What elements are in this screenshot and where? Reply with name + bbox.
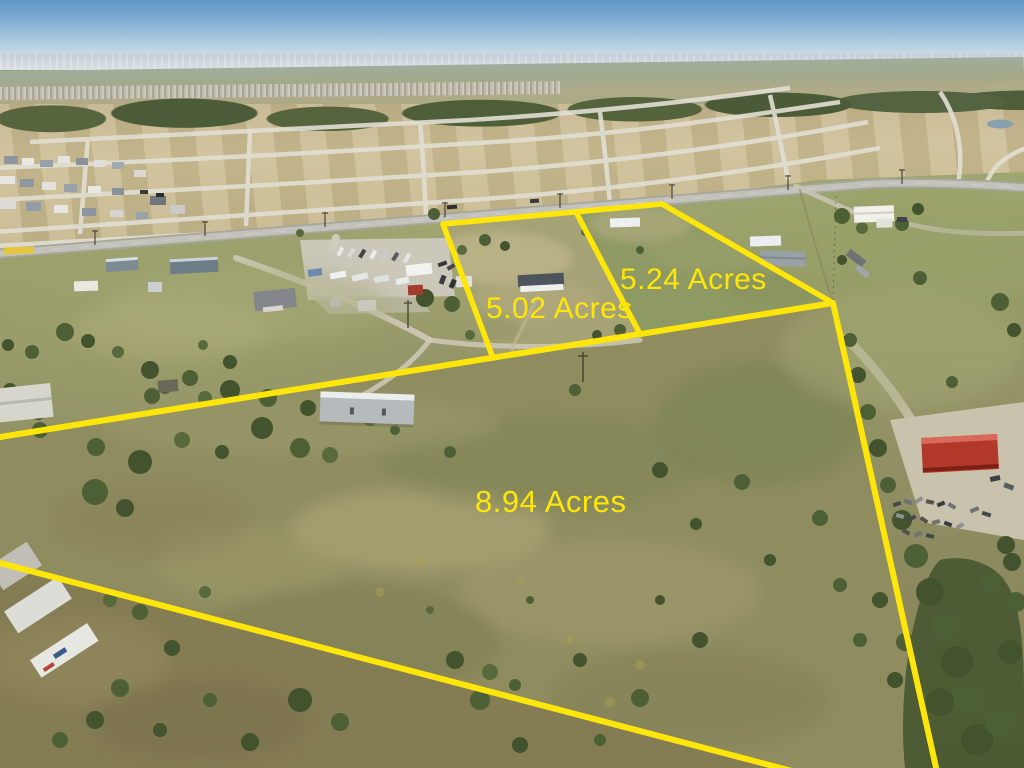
red-shed: [408, 285, 424, 296]
school-bus: [4, 246, 34, 254]
scene-overlay: [0, 0, 1024, 768]
parcel-label-5-02: 5.02 Acres: [486, 294, 633, 324]
shed: [358, 299, 377, 311]
pond: [987, 120, 1013, 129]
parcel-label-8-94: 8.94 Acres: [475, 486, 626, 517]
blue-shed: [170, 257, 219, 274]
small-shed: [148, 282, 162, 292]
aerial-photo: 5.02 Acres 5.24 Acres 8.94 Acres: [0, 0, 1024, 768]
white-shed: [74, 281, 98, 292]
left-edge-house: [0, 383, 54, 423]
salvage-building: [921, 434, 999, 473]
trailer-5-24: [610, 217, 640, 227]
dark-shed: [158, 379, 179, 393]
white-trailer: [750, 235, 781, 246]
car: [897, 217, 907, 222]
blue-shed: [106, 257, 139, 272]
house-5-02: [518, 273, 565, 292]
shed: [330, 298, 343, 308]
parcel-label-5-24: 5.24 Acres: [620, 265, 767, 295]
house-8-94: [319, 391, 414, 427]
